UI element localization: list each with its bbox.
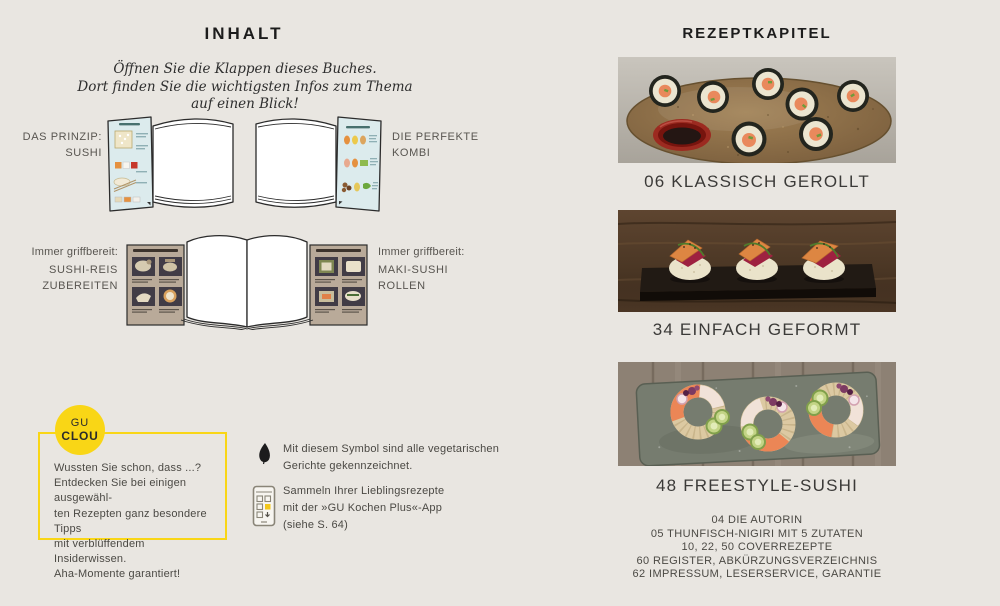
chapter-photo-klassisch-gerollt xyxy=(618,57,896,163)
badge-gu: GU xyxy=(71,417,90,429)
book-illustration-front-flap xyxy=(103,112,239,216)
chapter-caption-klassisch-gerollt: 06 KLASSISCH GEROLLT xyxy=(607,172,907,192)
index-line: 60 REGISTER, ABKÜRZUNGSVERZEICHNIS xyxy=(582,555,932,569)
intro-line-2: Dort finden Sie die wichtigsten Infos zu… xyxy=(70,79,420,114)
gu-clou-badge: GU CLOU xyxy=(55,405,105,455)
chapter-caption-einfach-geformt: 34 EINFACH GEFORMT xyxy=(607,320,907,340)
chapter-photo-einfach-geformt xyxy=(618,210,896,312)
intro-line-1: Öffnen Sie die Klappen dieses Buches. xyxy=(70,61,420,79)
label-die-perfekte-kombi: DIE PERFEKTE KOMBI xyxy=(392,129,482,161)
book-illustration-double-flap xyxy=(126,232,368,330)
page-index: 04 DIE AUTORIN 05 THUNFISCH-NIGIRI MIT 5… xyxy=(582,514,932,582)
index-line: 05 THUNFISCH-NIGIRI MIT 5 ZUTATEN xyxy=(582,528,932,542)
vegetarian-note: Mit diesem Symbol sind alle vegetarische… xyxy=(283,441,513,475)
badge-clou: CLOU xyxy=(61,429,98,443)
intro-text: Öffnen Sie die Klappen dieses Buches. Do… xyxy=(70,61,420,114)
soy-sauce-bowl xyxy=(653,119,711,151)
book-spread: INHALT Öffnen Sie die Klappen dieses Buc… xyxy=(0,0,1000,606)
index-line: 10, 22, 50 COVERREZEPTE xyxy=(582,541,932,555)
label-maki-sushi-rollen: Immer griffbereit: MAKI-SUSHI ROLLEN xyxy=(378,244,488,294)
left-page-title: INHALT xyxy=(94,24,394,44)
label-sushi-reis-zubereiten: Immer griffbereit: SUSHI-REIS ZUBEREITEN xyxy=(18,244,118,294)
index-line: 62 IMPRESSUM, LESERSERVICE, GARANTIE xyxy=(582,568,932,582)
vegetable-nigiri xyxy=(669,239,845,283)
flap-photos-left xyxy=(127,245,184,325)
smartphone-app-icon xyxy=(252,485,276,527)
chapter-photo-freestyle-sushi xyxy=(618,362,896,466)
book-illustration-back-flap xyxy=(250,112,386,216)
flap-photos-right xyxy=(310,245,367,325)
app-note: Sammeln Ihrer Lieblingsrezepte mit der »… xyxy=(283,483,513,534)
clou-box-text: Wussten Sie schon, dass ...? Entdecken S… xyxy=(54,461,216,583)
index-line: 04 DIE AUTORIN xyxy=(582,514,932,528)
chapter-caption-freestyle-sushi: 48 FREESTYLE-SUSHI xyxy=(607,476,907,496)
right-page-title: REZEPTKAPITEL xyxy=(607,25,907,42)
label-das-prinzip-sushi: DAS PRINZIP: SUSHI xyxy=(20,129,102,161)
leaf-icon xyxy=(257,443,273,465)
